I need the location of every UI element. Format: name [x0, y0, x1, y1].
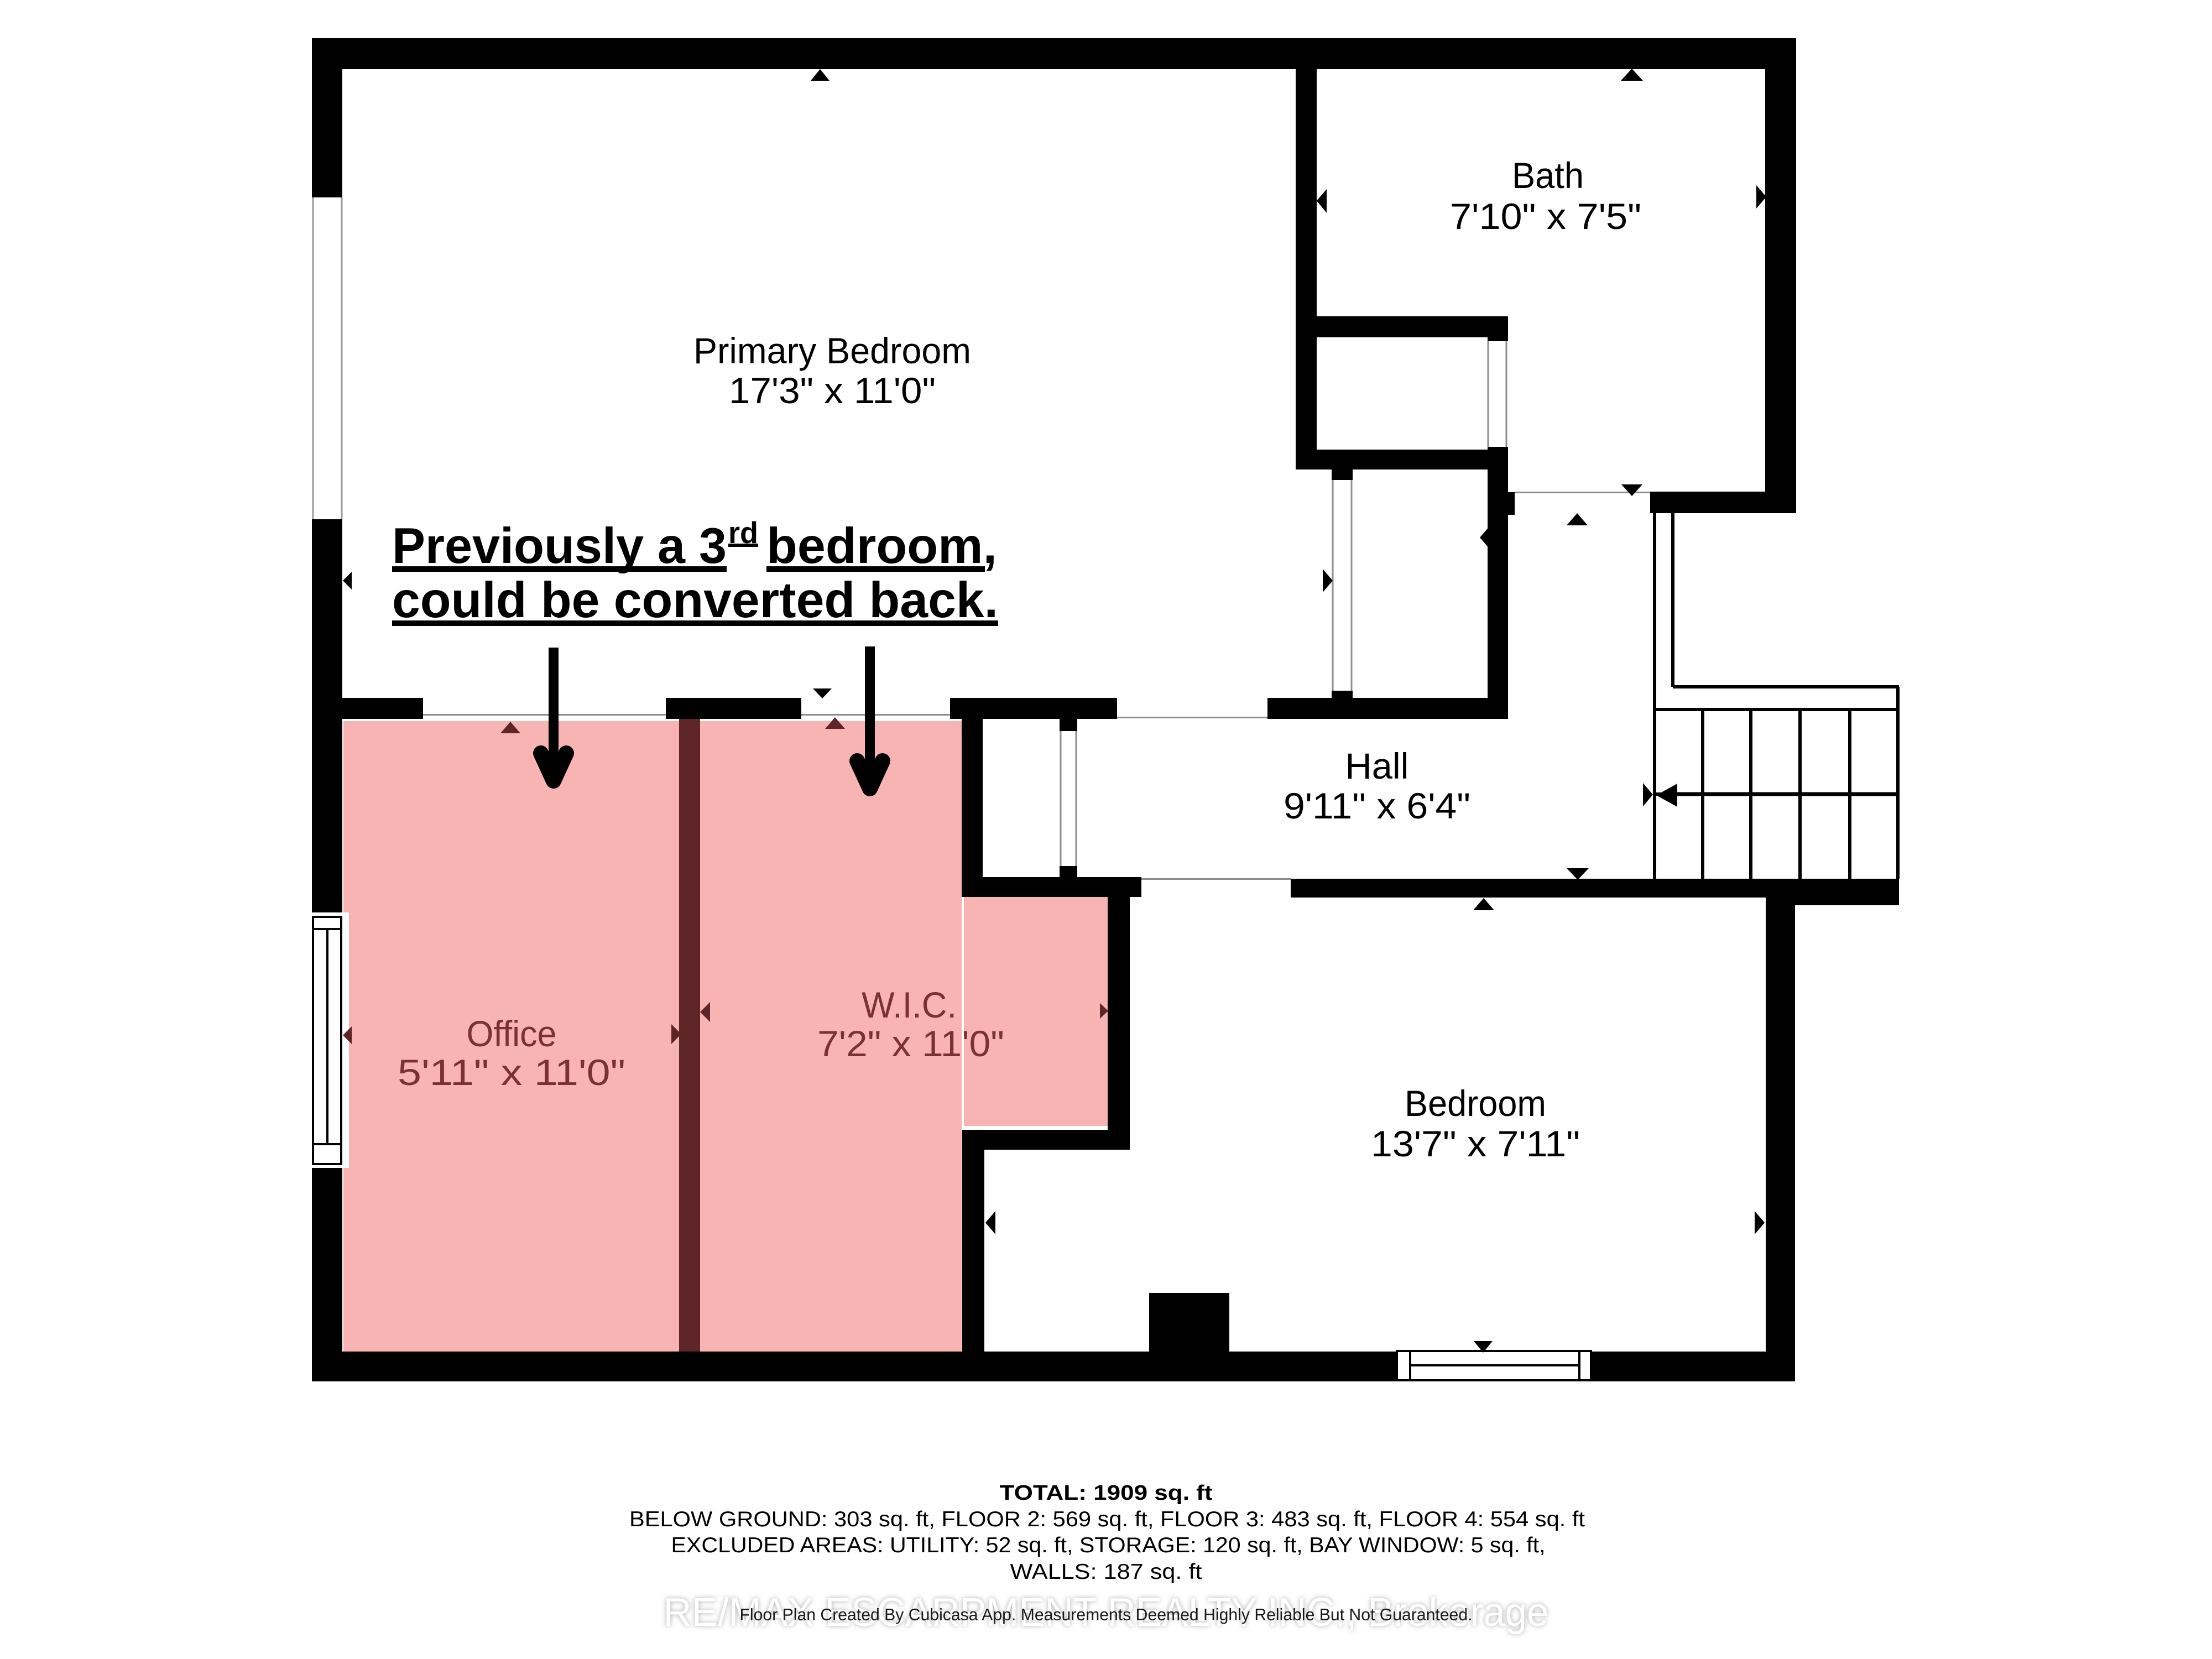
svg-text:Bedroom: Bedroom: [1405, 1083, 1546, 1124]
svg-text:13'7" x 7'11": 13'7" x 7'11": [1371, 1123, 1580, 1164]
svg-text:17'3" x 11'0": 17'3" x 11'0": [729, 370, 936, 411]
svg-text:Hall: Hall: [1345, 745, 1409, 786]
svg-text:Previously a 3: Previously a 3: [392, 518, 727, 574]
svg-text:TOTAL: 1909 sq. ft: TOTAL: 1909 sq. ft: [1000, 1481, 1213, 1505]
svg-text:EXCLUDED AREAS: UTILITY: 52 sq: EXCLUDED AREAS: UTILITY: 52 sq. ft, STOR…: [671, 1533, 1546, 1557]
svg-text:7'2" x 11'0": 7'2" x 11'0": [817, 1023, 1004, 1064]
svg-text:5'11" x 11'0": 5'11" x 11'0": [398, 1052, 625, 1093]
svg-text:9'11" x 6'4": 9'11" x 6'4": [1284, 785, 1470, 826]
svg-text:Bath: Bath: [1512, 155, 1584, 196]
svg-text:W.I.C.: W.I.C.: [862, 984, 957, 1025]
svg-text:Office: Office: [467, 1013, 557, 1054]
svg-text:could be converted back.: could be converted back.: [392, 572, 998, 628]
svg-text:bedroom,: bedroom,: [766, 518, 997, 574]
svg-text:7'10" x 7'5": 7'10" x 7'5": [1450, 196, 1641, 237]
svg-text:WALLS: 187 sq. ft: WALLS: 187 sq. ft: [1010, 1560, 1202, 1584]
svg-text:Floor Plan Created By Cubicasa: Floor Plan Created By Cubicasa App. Meas…: [740, 1605, 1473, 1624]
svg-text:BELOW GROUND: 303 sq. ft, FLOO: BELOW GROUND: 303 sq. ft, FLOOR 2: 569 s…: [629, 1507, 1585, 1531]
svg-text:Primary Bedroom: Primary Bedroom: [693, 330, 971, 371]
